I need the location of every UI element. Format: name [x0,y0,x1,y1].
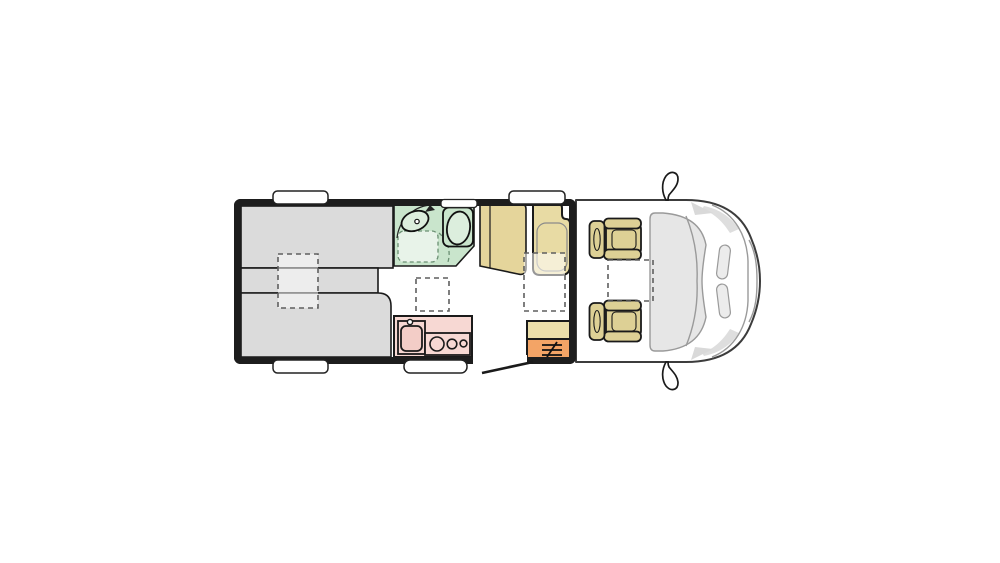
driver-seat-armrest-top [604,219,641,229]
hob [425,333,470,355]
entrance-cabinet [527,321,570,339]
shower-dashed [398,231,438,262]
rear-bed [241,206,393,357]
passenger-seat-armrest-top [604,301,641,311]
kitchen [394,316,472,357]
window-rear-top [273,191,328,204]
floorplan-canvas [0,0,1000,563]
passenger-seat [590,301,642,342]
bathroom [394,203,474,266]
window-dinette-top [509,191,565,204]
mirror-bottom [663,362,678,390]
step-tread-marks [542,342,562,357]
driver-seat [590,219,642,260]
kitchen-sink-bowl [401,326,422,351]
exterior-entry-step [404,360,467,373]
table-dashed [524,253,565,311]
kitchen-faucet [407,319,412,324]
driver-seat-armrest-bottom [604,250,641,260]
floorplan-svg [0,0,1000,563]
passenger-seat-armrest-bottom [604,332,641,342]
mirror-top [663,172,678,200]
passenger-seat-backrest [590,303,605,340]
wardrobe-body [480,204,526,274]
window-rear-bottom [273,360,328,373]
washbasin-drain [415,219,419,223]
bed-extension-dashed [278,254,318,308]
entrance-area [527,321,570,360]
driver-seat-backrest [590,221,605,258]
wardrobe [480,204,526,274]
toilet [443,208,473,247]
bathroom-window [441,200,477,208]
